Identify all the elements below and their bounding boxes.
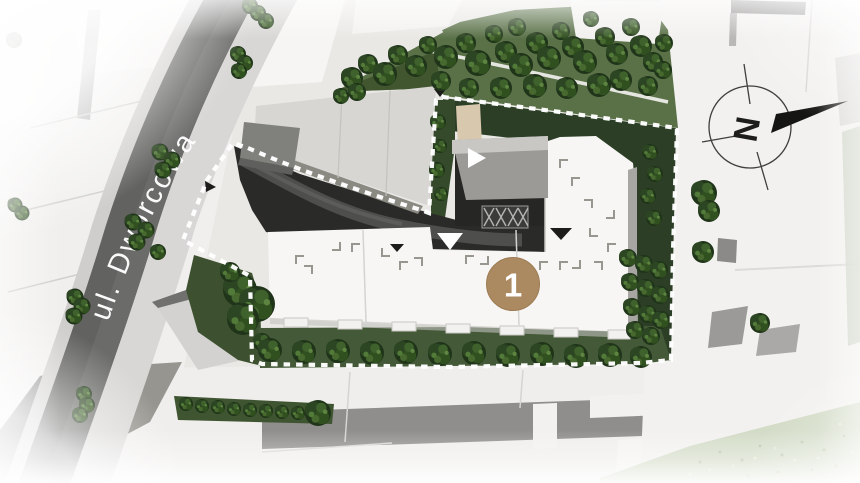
site-plan: ul. Dworcowa: [0, 0, 860, 483]
site-plan-canvas: ul. Dworcowa: [0, 0, 860, 483]
ramp-hatch: [482, 206, 528, 228]
unit-marker-1[interactable]: 1: [487, 258, 540, 311]
east-gray-wall: [731, 0, 806, 15]
unit-marker-number: 1: [504, 267, 522, 304]
